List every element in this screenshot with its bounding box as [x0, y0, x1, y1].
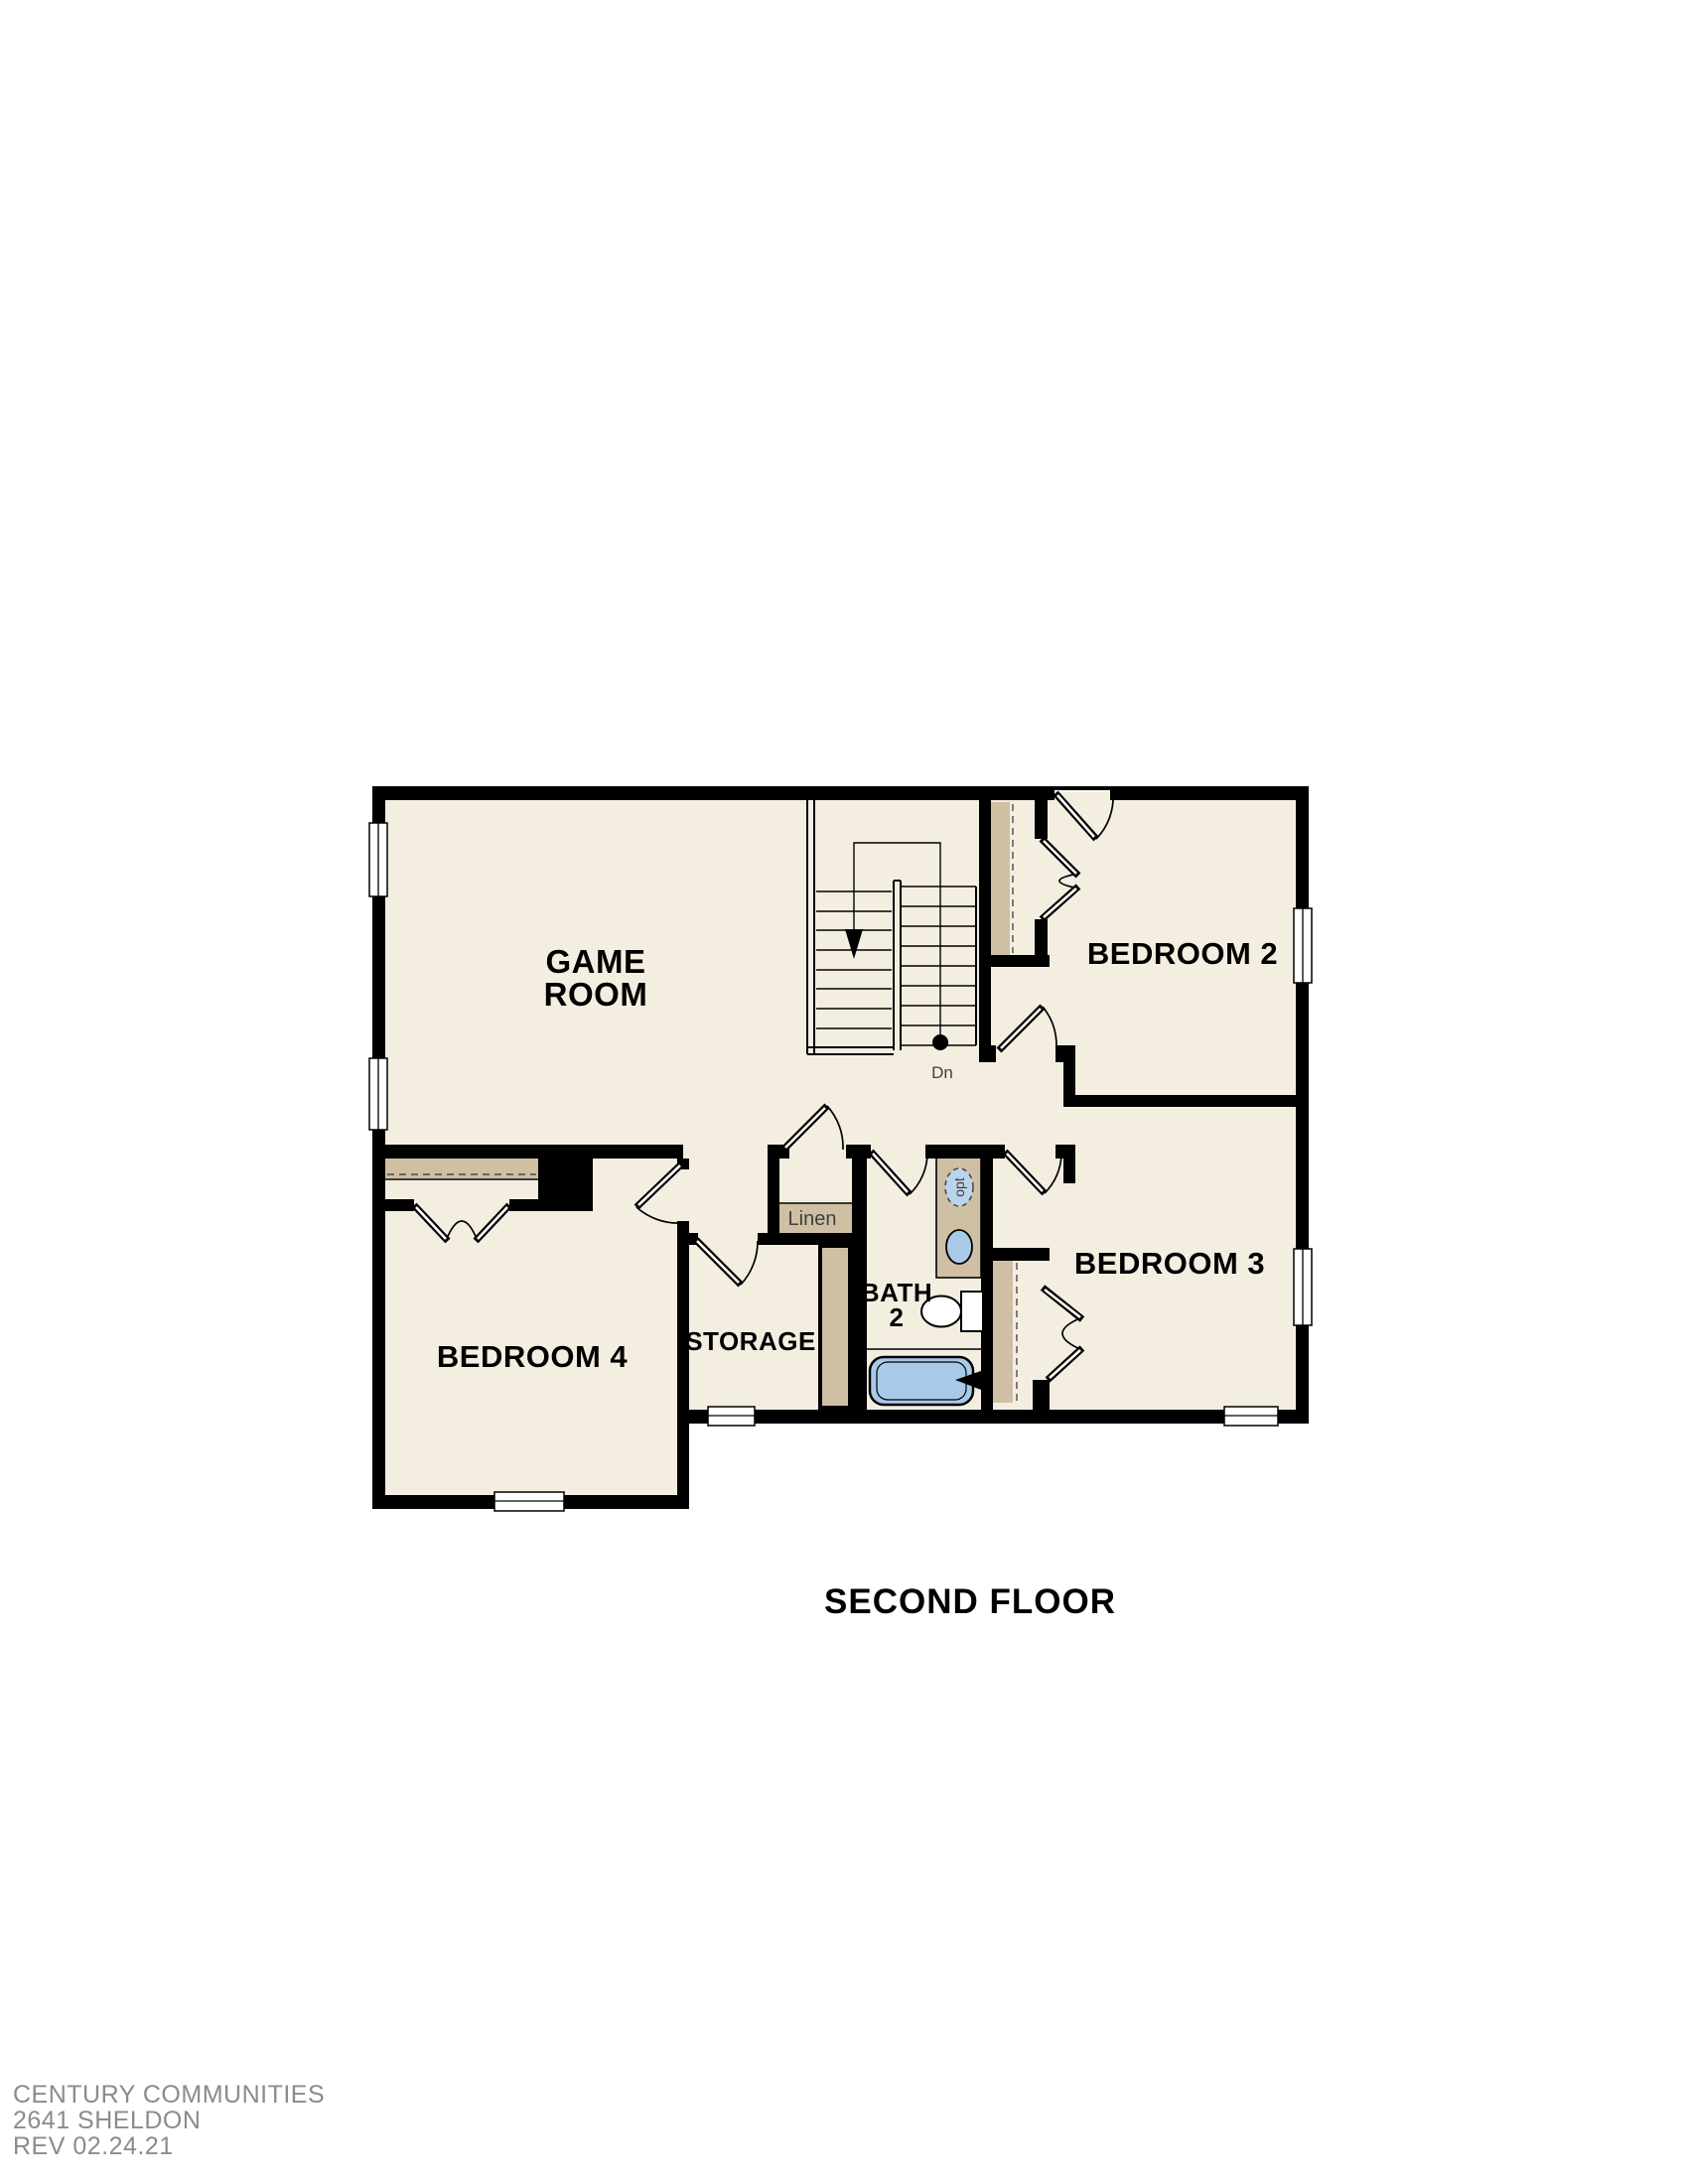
floor-plan-drawing: GAME ROOM BEDROOM 2 BEDROOM 3 BEDROOM 4 … — [0, 0, 1688, 2184]
window-icon — [494, 1492, 564, 1511]
sink-icon — [946, 1230, 972, 1264]
bedroom2-label: BEDROOM 2 — [1087, 936, 1278, 971]
window-icon — [369, 823, 387, 896]
storage-label: STORAGE — [685, 1326, 816, 1356]
footer-revision: REV 02.24.21 — [13, 2132, 174, 2160]
game-room-label-line1: GAME — [546, 943, 646, 980]
window-icon — [369, 1058, 387, 1130]
bedroom4-label: BEDROOM 4 — [437, 1339, 629, 1374]
floor-title: SECOND FLOOR — [824, 1582, 1116, 1621]
footer-company: CENTURY COMMUNITIES — [13, 2081, 325, 2109]
footer-plan-name: 2641 SHELDON — [13, 2107, 201, 2134]
optional-sink-label: opt — [951, 1177, 967, 1197]
bathtub-icon — [870, 1357, 981, 1405]
linen-label: Linen — [788, 1208, 837, 1230]
window-icon — [1224, 1407, 1278, 1426]
plumbing-chase — [818, 1244, 852, 1410]
bedroom4-closet-shelf — [385, 1159, 538, 1179]
floor-plan-page: GAME ROOM BEDROOM 2 BEDROOM 3 BEDROOM 4 … — [0, 0, 1688, 2184]
bath2-label-line2: 2 — [890, 1302, 905, 1332]
bedroom3-label: BEDROOM 3 — [1074, 1246, 1265, 1281]
window-icon — [708, 1407, 755, 1426]
window-icon — [1294, 908, 1312, 983]
stairs-start-dot — [932, 1034, 948, 1050]
window-icon — [1294, 1249, 1312, 1325]
game-room-label-line2: ROOM — [544, 976, 648, 1013]
stairs-dn-label: Dn — [931, 1063, 953, 1082]
bedroom2-closet-shelf — [991, 802, 1013, 955]
footer: CENTURY COMMUNITIES 2641 SHELDON REV 02.… — [13, 2081, 325, 2160]
